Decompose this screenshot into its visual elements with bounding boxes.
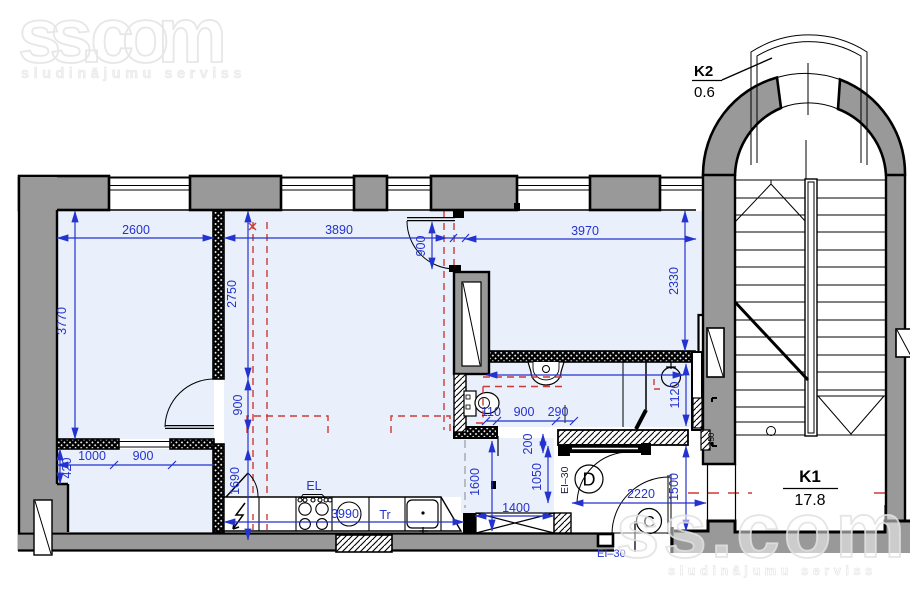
svg-text:290: 290 [548,405,569,419]
svg-text:1690: 1690 [228,467,242,495]
svg-text:200: 200 [521,434,535,455]
svg-text:0.6: 0.6 [694,84,715,101]
svg-text:D: D [583,470,596,490]
svg-text:900: 900 [133,449,154,463]
svg-text:Tr: Tr [379,508,390,522]
svg-text:2600: 2600 [122,223,150,237]
svg-text:1120: 1120 [668,382,682,409]
svg-text:sludinājumu serviss: sludinājumu serviss [668,563,877,578]
svg-text:2330: 2330 [667,267,681,295]
svg-text:K1: K1 [799,467,821,486]
svg-text:3970: 3970 [571,224,599,238]
svg-text:3890: 3890 [325,223,353,237]
svg-text:1600: 1600 [468,468,482,496]
svg-text:1000: 1000 [78,449,106,463]
svg-text:3990: 3990 [331,507,359,521]
svg-text:1050: 1050 [530,463,544,491]
svg-text:900: 900 [514,405,535,419]
svg-text:2750: 2750 [225,280,239,308]
svg-text:sludinājumu serviss: sludinājumu serviss [21,66,246,82]
svg-text:420: 420 [60,458,74,479]
svg-text:3770: 3770 [55,307,69,335]
svg-text:900: 900 [414,236,428,257]
svg-text:ss.com: ss.com [616,486,909,574]
svg-text:EL: EL [306,479,321,493]
svg-text:1400: 1400 [502,501,530,515]
svg-text:K2: K2 [694,63,713,80]
svg-text:900: 900 [231,395,245,416]
svg-text:EI–30: EI–30 [559,466,571,494]
svg-text:110: 110 [481,405,501,419]
